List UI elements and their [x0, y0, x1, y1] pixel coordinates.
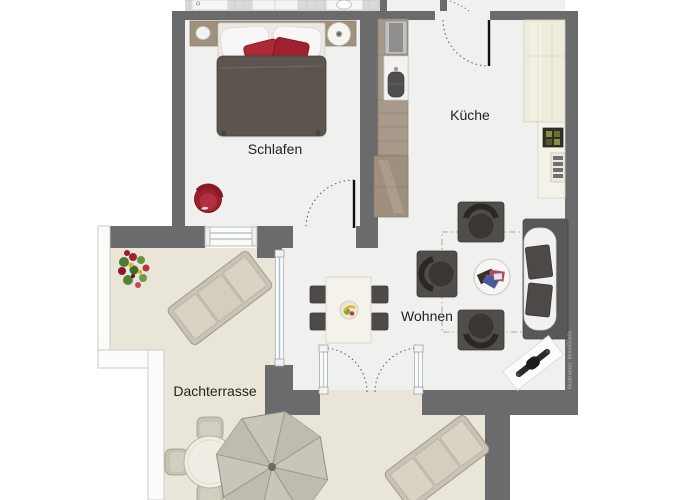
washer-knob-icon — [196, 2, 199, 5]
wall-block-upper — [257, 226, 293, 248]
fruit-bowl-icon — [340, 301, 358, 319]
wall-top-right — [490, 11, 578, 20]
label-kueche: Küche — [450, 107, 490, 123]
faucet-icon — [394, 67, 398, 71]
wall-stub-door — [356, 226, 378, 248]
terrace-threshold — [320, 390, 422, 415]
terrace-window-icon — [205, 227, 257, 246]
wall-stub-up2 — [440, 0, 447, 11]
dining-chair-icon — [371, 286, 388, 303]
upper-strip-hall-floor — [387, 0, 565, 11]
armchair-icon — [458, 310, 504, 350]
label-schlafen: Schlafen — [248, 141, 302, 157]
coffee-table-icon — [474, 259, 510, 295]
dining-chair-icon — [310, 286, 327, 303]
small-appliance-icon — [543, 128, 563, 147]
floor-plan: Schlafen Küche Wohnen Dachterrasse Illus… — [0, 0, 700, 500]
label-wohnen: Wohnen — [401, 308, 453, 324]
sofa-icon — [523, 219, 568, 339]
label-dachterrasse: Dachterrasse — [173, 383, 256, 399]
wall-bottom-right — [422, 390, 578, 415]
wall-stub-up1 — [380, 0, 387, 11]
wall-bottom-left — [265, 390, 320, 415]
glass-front-icon — [275, 250, 284, 366]
vent-unit-icon — [551, 153, 565, 182]
wall-terrace-top — [110, 226, 205, 248]
watermark-text: Illustration: ImmoGrafik — [568, 331, 574, 390]
floor-plan-page: Schlafen Küche Wohnen Dachterrasse Illus… — [0, 0, 700, 500]
sink-icon — [388, 72, 404, 97]
wall-stub-down — [485, 415, 510, 500]
dining-chair-icon — [310, 313, 327, 330]
wall-block-lower — [265, 365, 293, 390]
dining-chair-icon — [371, 313, 388, 330]
armchair-icon — [458, 202, 504, 242]
armchair-icon — [417, 251, 457, 297]
tall-cabinet-icon — [524, 20, 565, 122]
entry-gap-floor — [435, 11, 490, 20]
kitchen-counter-icon — [374, 19, 408, 217]
double-bed-icon — [217, 23, 326, 137]
lamp-left-icon — [196, 27, 210, 40]
wall-bedroom-left — [172, 11, 185, 248]
